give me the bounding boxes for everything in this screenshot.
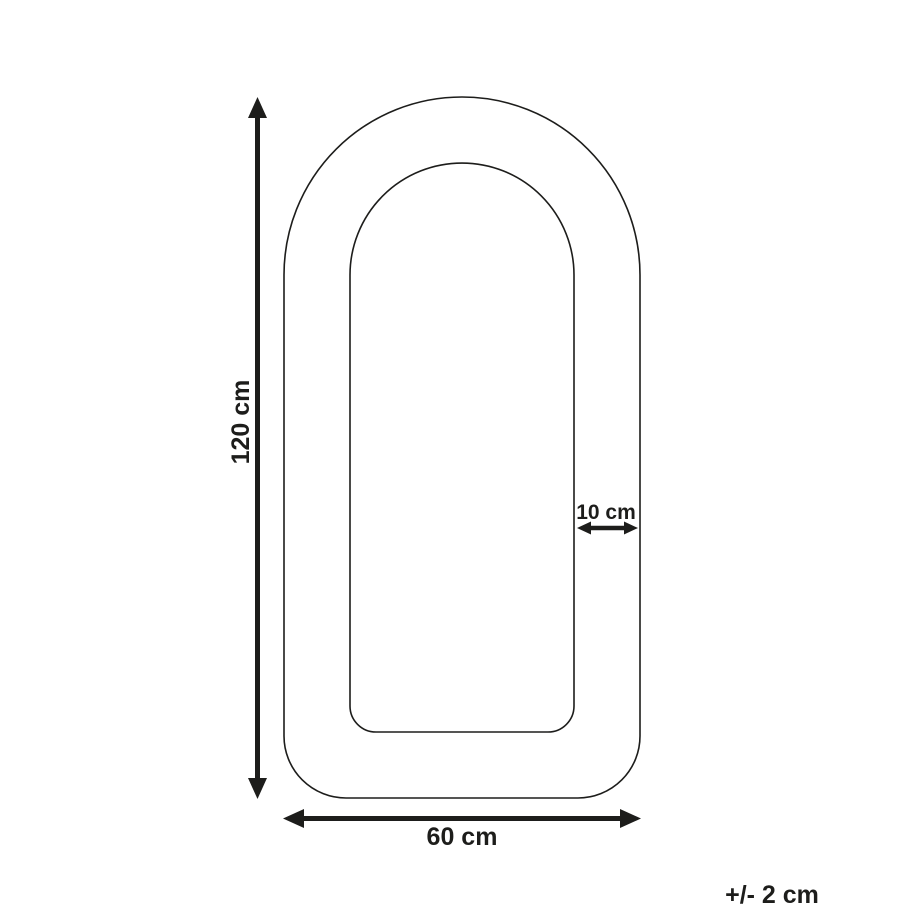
width-dimension-label: 60 cm [427, 823, 498, 851]
border-width-dimension-label: 10 cm [576, 501, 636, 524]
tolerance-note: +/- 2 cm [725, 881, 819, 909]
product-dimension-diagram: 120 cm 60 cm 10 cm +/- 2 cm [0, 0, 920, 920]
inner-shape-outline [350, 163, 574, 732]
dimension-diagram-canvas: 120 cm 60 cm 10 cm +/- 2 cm [0, 0, 920, 920]
arrow-right-icon [620, 809, 641, 828]
outer-shape-outline [284, 97, 640, 798]
arrow-down-icon [248, 778, 267, 799]
height-dimension-label: 120 cm [227, 380, 255, 465]
arrow-left-icon [283, 809, 304, 828]
arrow-up-icon [248, 97, 267, 118]
